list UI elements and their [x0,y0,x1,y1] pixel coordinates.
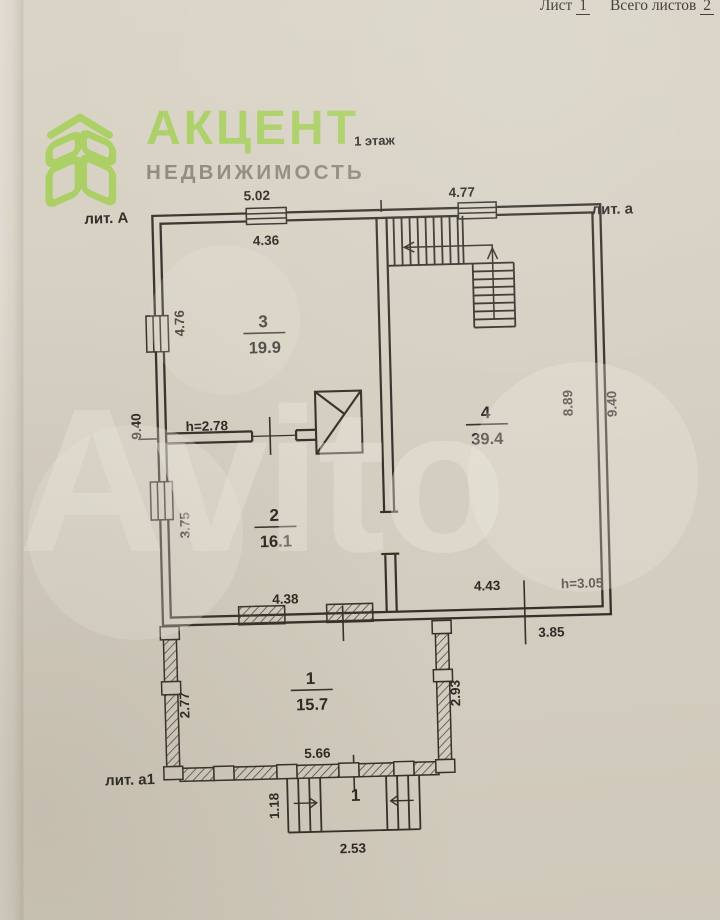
dim-top-left: 5.02 [243,188,270,204]
room4-area: 39.4 [471,430,504,449]
window-bottom-room2-a [239,606,285,625]
room3-number: 3 [258,312,268,331]
porch-number: 1 [351,786,361,805]
sheet-label-group: Лист 1 [540,0,590,15]
floor-plan-drawing: 1 этаж лит. А лит. а лит. а1 5.02 4.77 4… [0,0,720,920]
dim-top-right: 4.77 [448,184,475,200]
window-top-room3 [246,207,286,224]
total-sheets-group: Всего листов 2 [610,0,714,15]
room1-number: 1 [305,669,315,688]
dim-room2-left: 3.75 [177,511,193,538]
total-sheets-number: 2 [700,0,714,15]
scanned-floor-plan-page: Лист 1 Всего листов 2 АКЦЕНТ [0,0,720,920]
stove-icon [315,391,363,454]
dim-left-total: 9.40 [128,413,144,440]
litera-annex: лит. а [591,200,634,218]
interior-walls [161,218,401,618]
room3-area: 19.9 [249,339,282,358]
dim-room4-bottom: 4.43 [474,578,501,594]
dim-right-total: 9.40 [604,391,620,418]
dim-veranda-right: 2.93 [448,679,464,706]
stair-treads-upper [393,216,458,266]
dim-bottom-offset: 3.85 [538,624,565,640]
room2-area: 16.1 [260,532,293,551]
room4-number: 4 [481,403,491,422]
sheet-label: Лист [540,0,572,14]
window-top-room4 [458,202,496,219]
height-room4: h=3.05 [561,575,604,591]
dim-porch-side: 1.18 [266,792,282,819]
room1-area: 15.7 [296,696,329,715]
floor-label: 1 этаж [354,133,396,149]
dim-room2-bottom: 4.38 [272,591,299,607]
dim-porch-bottom: 2.53 [340,841,367,857]
dim-room3-top: 4.36 [253,233,280,249]
window-symbols [143,202,507,627]
total-sheets-label: Всего листов [610,0,696,14]
staircase [386,215,515,330]
window-left-room3 [146,316,169,353]
height-room3: h=2.78 [185,418,228,434]
dim-room3-left: 4.76 [172,309,188,336]
door-room3-room2 [252,435,296,436]
room-fraction-lines [243,327,514,692]
sheet-header: Лист 1 Всего листов 2 [540,0,714,15]
dim-veranda-bottom: 5.66 [304,745,331,761]
dim-room4-right-inner: 8.89 [560,390,576,417]
sheet-number: 1 [576,0,590,15]
litera-veranda: лит. а1 [105,771,155,789]
veranda-window-right [433,669,452,681]
window-bottom-room2-b [327,603,373,622]
dim-veranda-left: 2.77 [177,692,193,719]
litera-main: лит. А [84,210,129,228]
window-left-room2 [150,482,173,521]
room2-number: 2 [269,506,279,525]
